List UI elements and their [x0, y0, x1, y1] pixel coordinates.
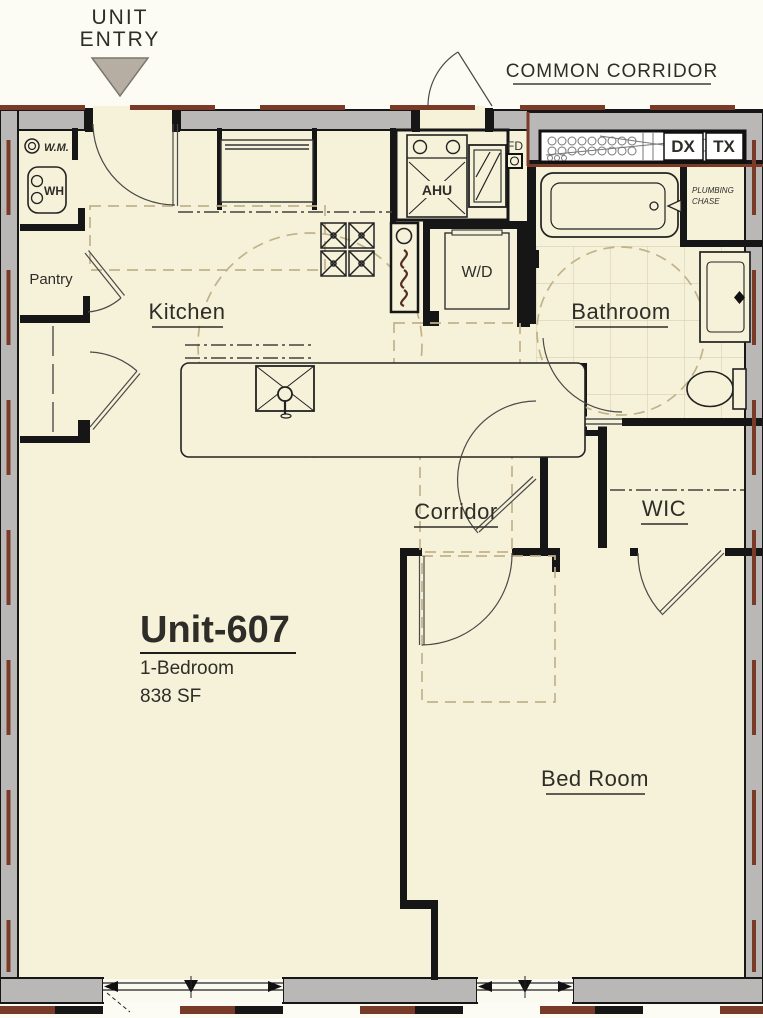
dx-label: DX	[671, 137, 695, 156]
floor-plan-drawing: DX TX	[0, 0, 763, 1018]
bathroom-vanity	[700, 252, 750, 342]
washer-dryer-label: W/D	[461, 264, 492, 281]
convector-unit: DX TX	[540, 131, 745, 162]
unit-type: 1-Bedroom	[140, 658, 234, 679]
ahu-label: AHU	[422, 182, 452, 198]
bathroom-label: Bathroom	[571, 299, 670, 324]
unit-name: Unit-607	[140, 609, 290, 651]
washing-machine-label: W.M.	[44, 142, 69, 154]
fire-damper-label: FD	[507, 139, 523, 153]
plumbing-chase-label-line2: CHASE	[692, 197, 720, 206]
floor-plan-unit-607: DX TX	[0, 0, 763, 1018]
refrigerator	[221, 140, 313, 202]
fire-damper	[507, 154, 522, 168]
common-corridor-door	[428, 52, 492, 106]
ahu-unit	[407, 135, 467, 217]
water-heater-label: WH	[44, 184, 64, 198]
plumbing-chase-label-line1: PLUMBING	[692, 186, 734, 195]
toilet	[687, 369, 746, 409]
coil-riser	[391, 223, 418, 312]
kitchen-sink	[256, 366, 314, 418]
common-corridor-annotation: COMMON CORRIDOR	[506, 61, 718, 84]
common-corridor-label: COMMON CORRIDOR	[506, 61, 718, 82]
unit-entry-label-line2: ENTRY	[80, 28, 161, 51]
unit-entry-label-line1: UNIT	[92, 6, 149, 29]
ahu-louver-door	[469, 145, 506, 207]
window-2	[477, 976, 573, 1002]
kitchen-label: Kitchen	[149, 299, 226, 324]
tx-label: TX	[713, 137, 735, 156]
bedroom-label: Bed Room	[541, 766, 649, 791]
bathtub	[541, 173, 681, 237]
kitchen-island	[181, 363, 585, 457]
unit-area: 838 SF	[140, 686, 201, 707]
unit-entry-annotation: UNIT ENTRY	[80, 6, 161, 96]
unit-entry-arrow-icon	[92, 58, 148, 96]
pantry-label: Pantry	[29, 271, 73, 288]
wic-label: WIC	[642, 496, 686, 521]
corridor-label: Corridor	[414, 499, 497, 524]
